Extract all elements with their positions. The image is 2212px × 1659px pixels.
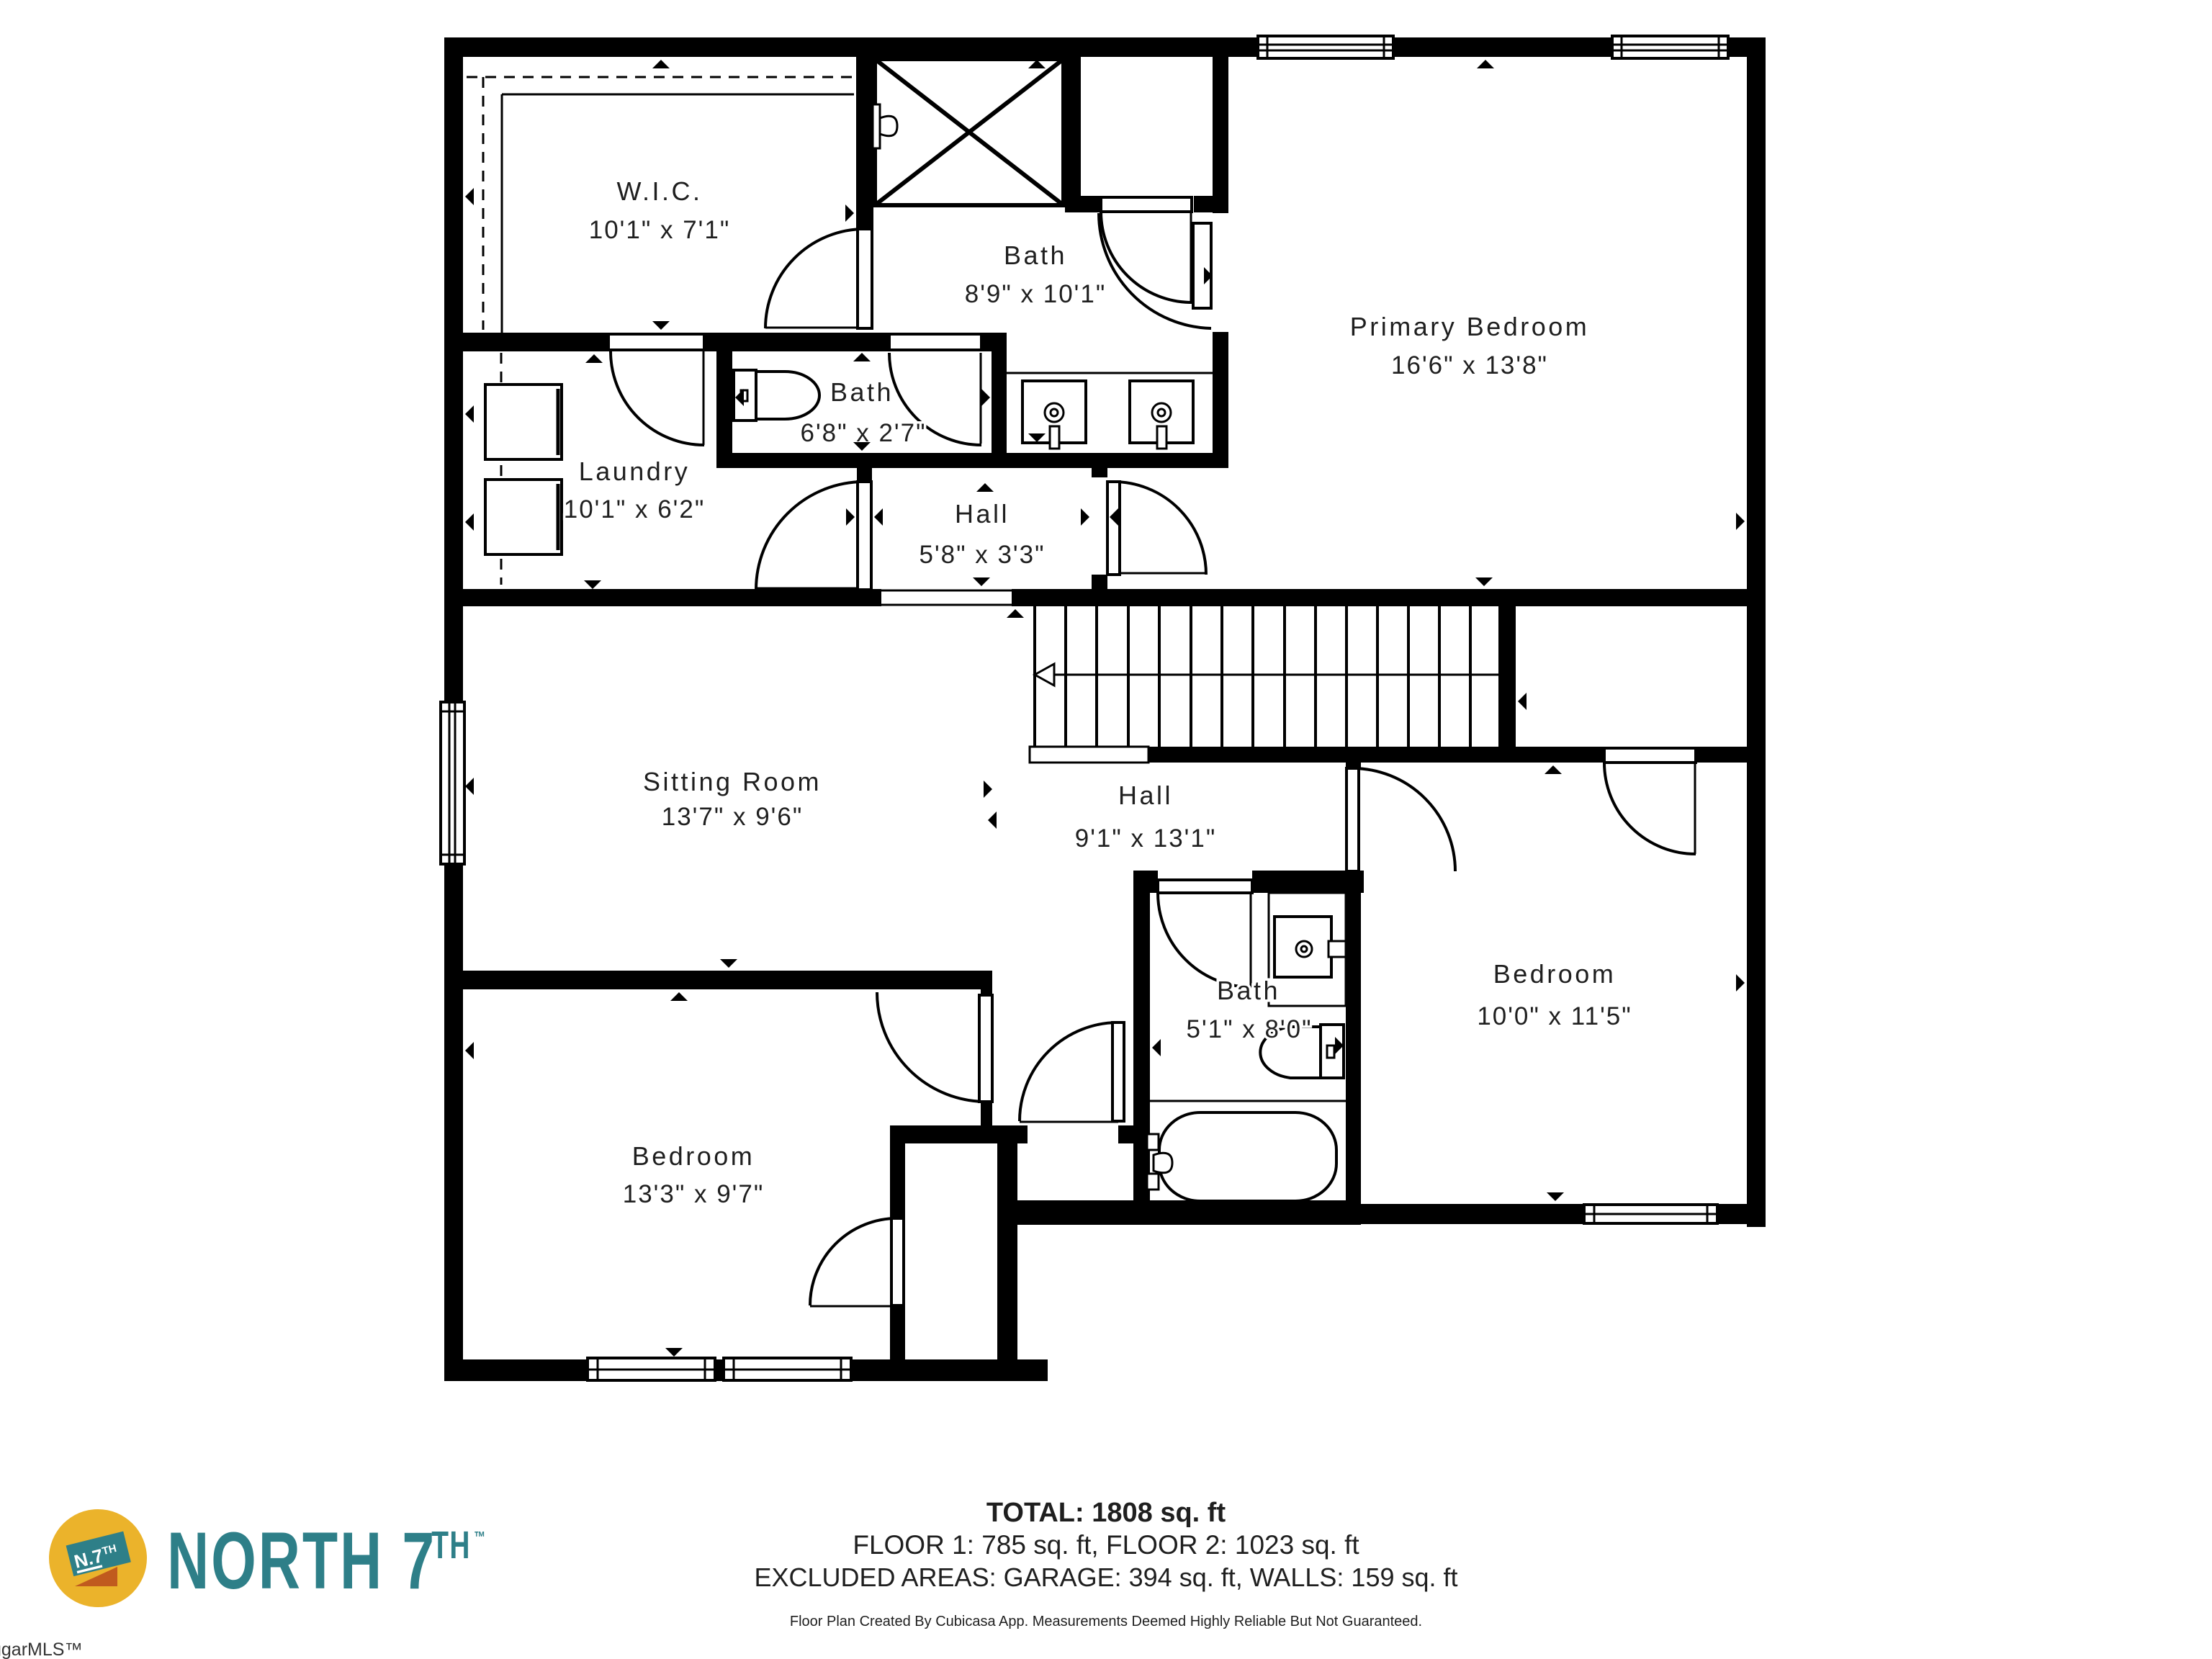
svg-text:10'0" x 11'5": 10'0" x 11'5": [1477, 1002, 1632, 1030]
svg-text:Hall: Hall: [1118, 781, 1173, 810]
svg-text:5'8" x 3'3": 5'8" x 3'3": [919, 541, 1045, 569]
svg-text:Laundry: Laundry: [579, 457, 691, 486]
svg-text:™: ™: [474, 1529, 485, 1547]
svg-text:16'6" x 13'8": 16'6" x 13'8": [1391, 351, 1548, 379]
svg-text:ggarMLS™: ggarMLS™: [0, 1640, 82, 1659]
svg-text:13'3" x 9'7": 13'3" x 9'7": [623, 1180, 765, 1208]
svg-text:9'1" x 13'1": 9'1" x 13'1": [1075, 824, 1217, 853]
svg-text:Floor Plan Created By Cubicasa: Floor Plan Created By Cubicasa App. Meas…: [790, 1614, 1422, 1629]
svg-text:10'1" x 6'2": 10'1" x 6'2": [564, 495, 706, 523]
svg-text:Bedroom: Bedroom: [1493, 959, 1617, 989]
svg-text:W.I.C.: W.I.C.: [617, 176, 703, 206]
svg-text:5'1" x 8'0": 5'1" x 8'0": [1186, 1015, 1312, 1043]
svg-text:Bedroom: Bedroom: [632, 1141, 755, 1171]
svg-text:8'9" x 10'1": 8'9" x 10'1": [965, 280, 1107, 308]
svg-text:Bath: Bath: [830, 377, 894, 407]
svg-text:Bath: Bath: [1217, 976, 1280, 1005]
svg-text:Primary Bedroom: Primary Bedroom: [1350, 312, 1590, 341]
svg-text:Hall: Hall: [955, 499, 1010, 529]
svg-text:13'7" x 9'6": 13'7" x 9'6": [662, 803, 804, 831]
svg-text:Sitting Room: Sitting Room: [643, 767, 822, 796]
svg-text:TOTAL: 1808 sq. ft: TOTAL: 1808 sq. ft: [986, 1498, 1226, 1528]
svg-text:TH: TH: [431, 1523, 471, 1567]
svg-text:FLOOR 1: 785 sq. ft, FLOOR 2:: FLOOR 1: 785 sq. ft, FLOOR 2: 1023 sq. f…: [853, 1530, 1359, 1560]
svg-text:EXCLUDED AREAS: GARAGE: 394 sq: EXCLUDED AREAS: GARAGE: 394 sq. ft, WALL…: [754, 1563, 1457, 1592]
svg-text:10'1" x 7'1": 10'1" x 7'1": [589, 216, 731, 244]
svg-text:Bath: Bath: [1004, 240, 1067, 270]
svg-text:NORTH 7: NORTH 7: [167, 1516, 436, 1606]
